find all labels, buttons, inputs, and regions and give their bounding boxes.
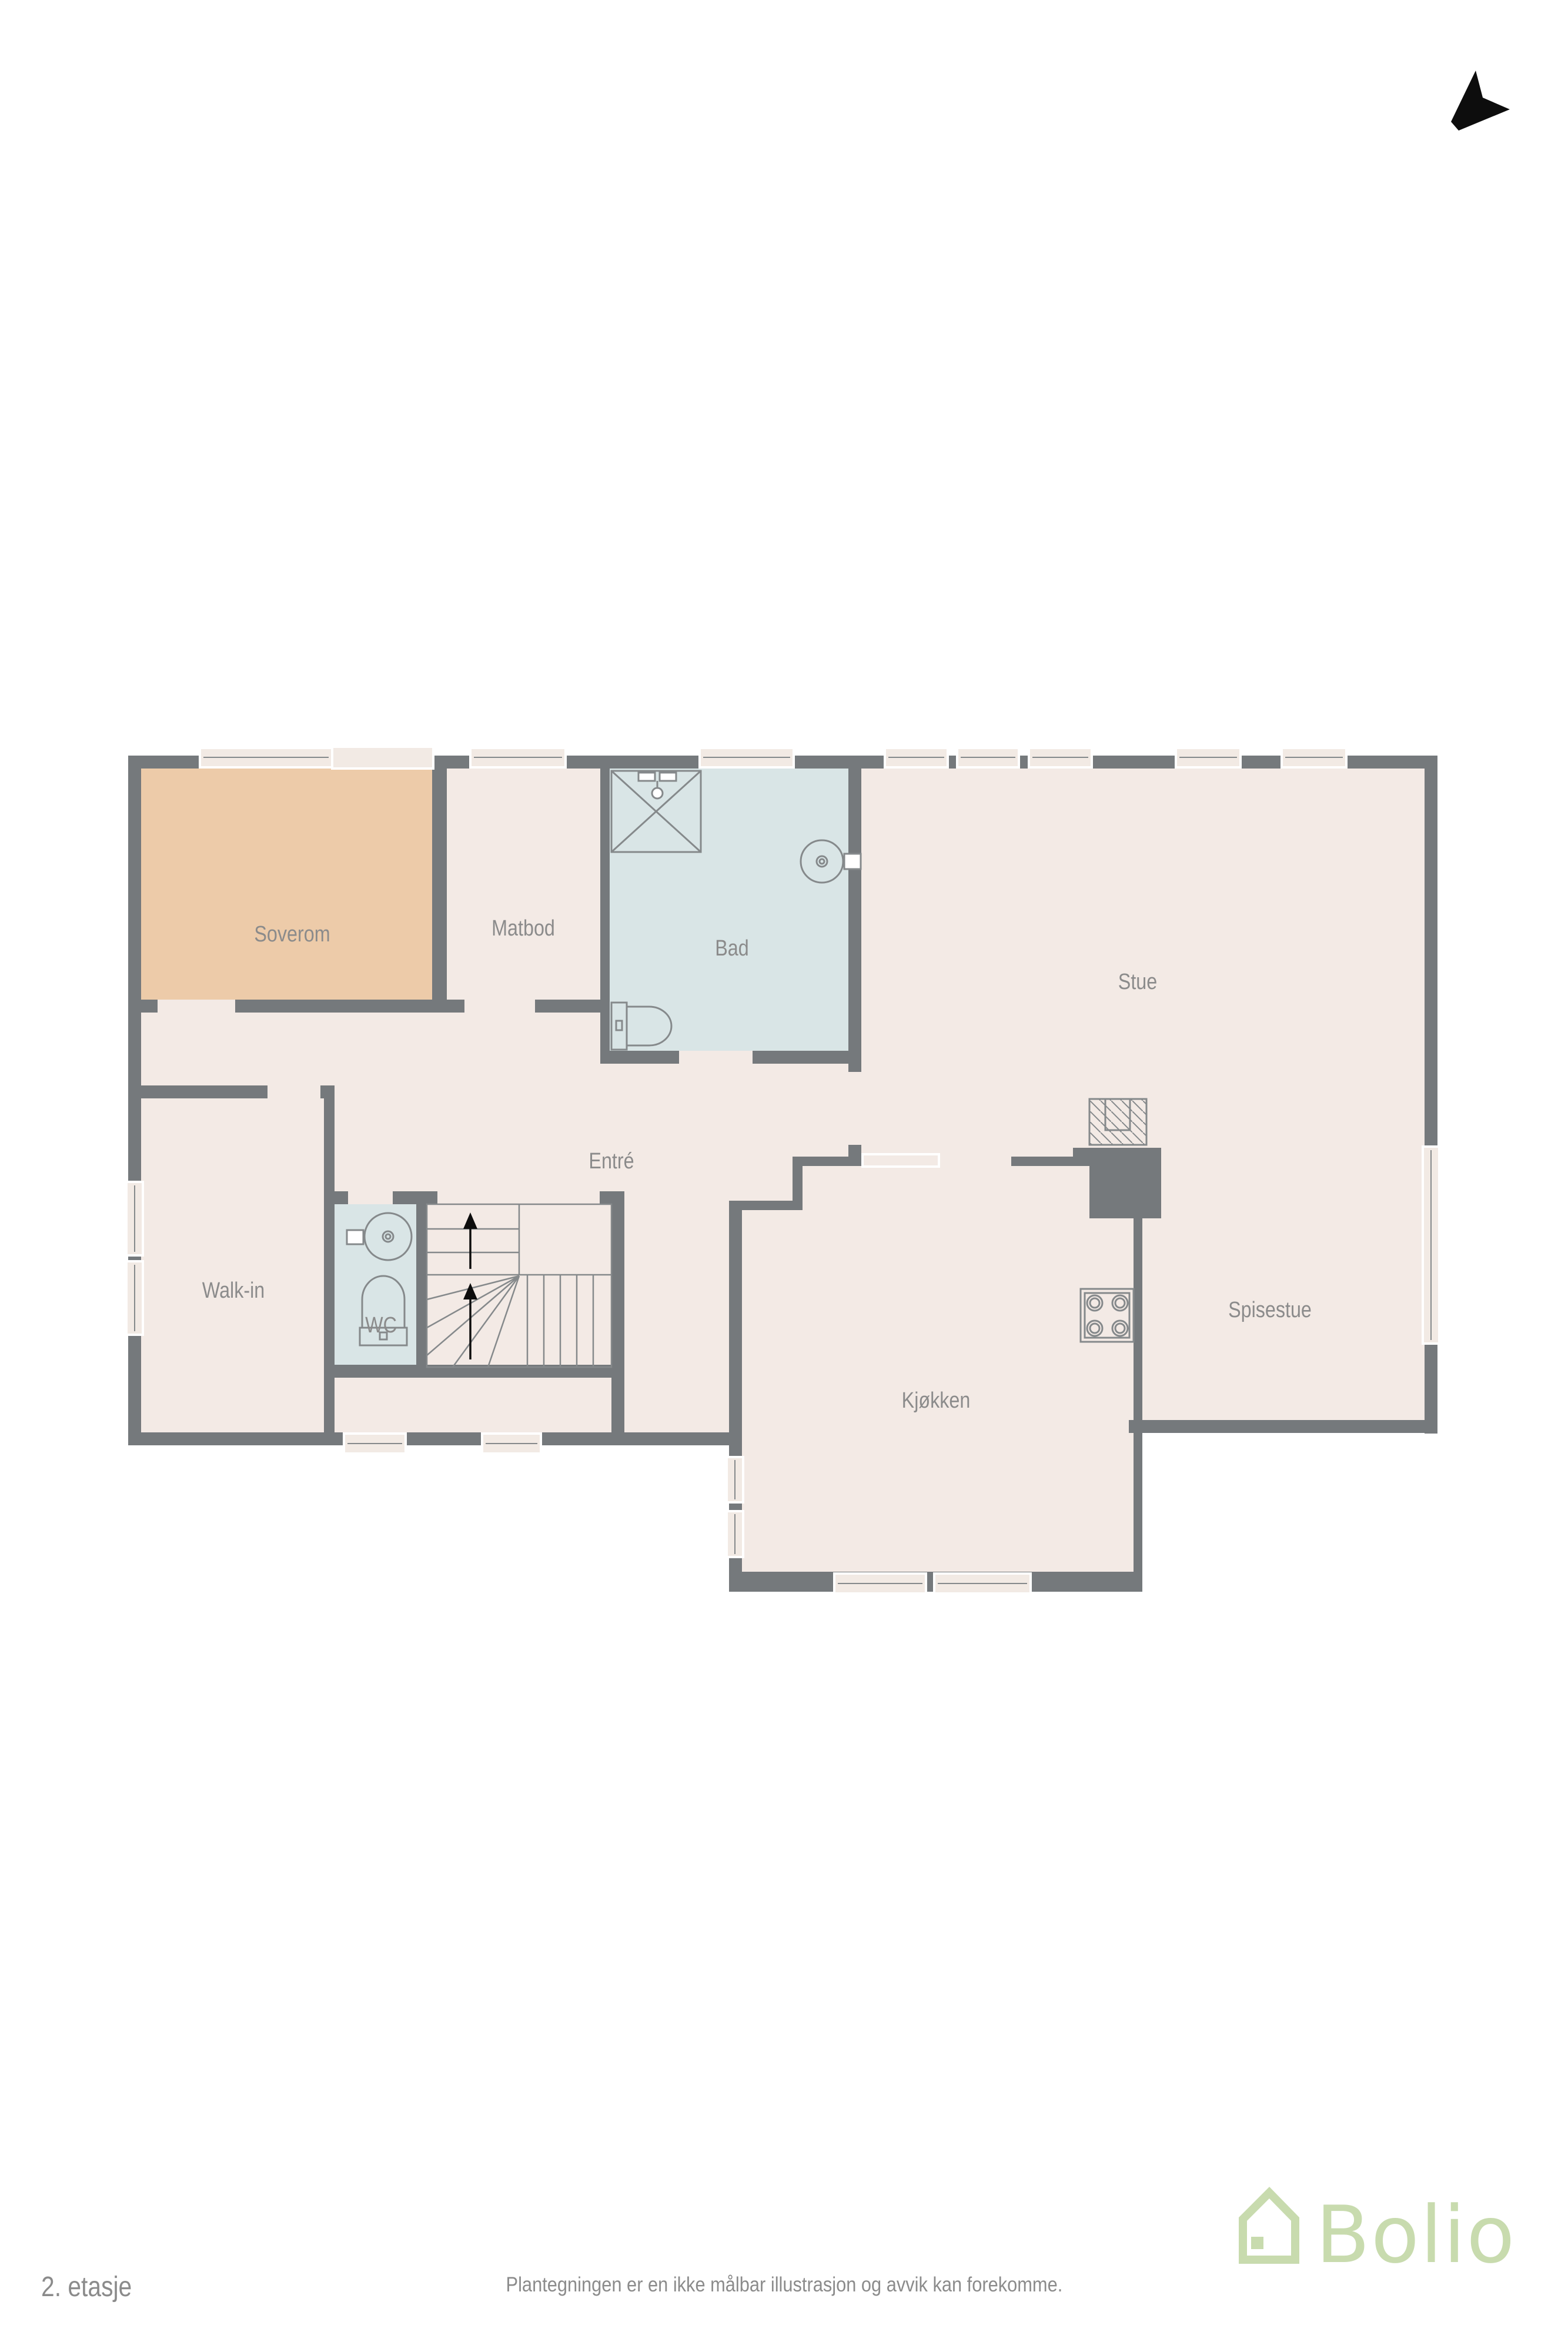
window-south-2 — [482, 1434, 541, 1454]
floor-plan-canvas: Soverom Matbod Bad Stue Walk-in WC Entré… — [0, 0, 1568, 2352]
chimney-block-lower — [1089, 1166, 1161, 1218]
bolio-logo: Bolio — [1243, 2189, 1516, 2281]
window-soverom — [200, 748, 332, 767]
room-fill-wc — [335, 1204, 416, 1365]
brand-name: Bolio — [1316, 2189, 1516, 2281]
door-leaf — [862, 1154, 939, 1167]
room-label-entre: Entré — [589, 1149, 634, 1174]
floor-plan-page: Soverom Matbod Bad Stue Walk-in WC Entré… — [0, 0, 1568, 2352]
window-bad — [700, 748, 794, 767]
chimney-block — [1073, 1148, 1161, 1166]
window-stue-2 — [957, 748, 1019, 767]
window-spisestue — [1423, 1147, 1439, 1344]
room-label-matbod: Matbod — [492, 916, 555, 941]
fireplace-hatch-icon — [1089, 1099, 1146, 1145]
room-label-bad: Bad — [715, 936, 748, 961]
window-kitchen-south-1 — [834, 1573, 926, 1593]
room-label-spisestue: Spisestue — [1228, 1298, 1312, 1322]
bolio-house-icon — [1243, 2193, 1295, 2260]
window-stue-4 — [1176, 748, 1241, 767]
bolio-house-door — [1251, 2237, 1263, 2249]
disclaimer-text: Plantegningen er en ikke målbar illustra… — [506, 2273, 1062, 2297]
window-stue-5 — [1282, 748, 1346, 767]
room-label-kjokken: Kjøkken — [902, 1388, 971, 1413]
window-stue-3 — [1029, 748, 1092, 767]
window-south-1 — [344, 1434, 406, 1454]
window-kitchen-left-2 — [727, 1511, 743, 1557]
wall-opening-top — [332, 747, 433, 769]
room-label-walk-in: Walk-in — [202, 1278, 265, 1303]
kitchen-extension-area — [742, 1432, 1134, 1572]
room-label-stue: Stue — [1118, 970, 1157, 994]
window-matbod — [470, 748, 566, 767]
room-label-wc: WC — [365, 1313, 397, 1338]
window-stue-1 — [885, 748, 948, 767]
window-walkin-1 — [126, 1182, 143, 1255]
room-label-soverom: Soverom — [254, 922, 330, 947]
room-fill-bad — [610, 769, 848, 1051]
window-kitchen-left-1 — [727, 1457, 743, 1502]
window-walkin-2 — [126, 1261, 143, 1335]
window-kitchen-south-2 — [934, 1573, 1031, 1593]
disclaimer: Plantegningen er en ikke målbar illustra… — [0, 2273, 1568, 2297]
north-arrow-icon — [1451, 71, 1510, 131]
room-fill-soverom — [141, 769, 432, 1000]
